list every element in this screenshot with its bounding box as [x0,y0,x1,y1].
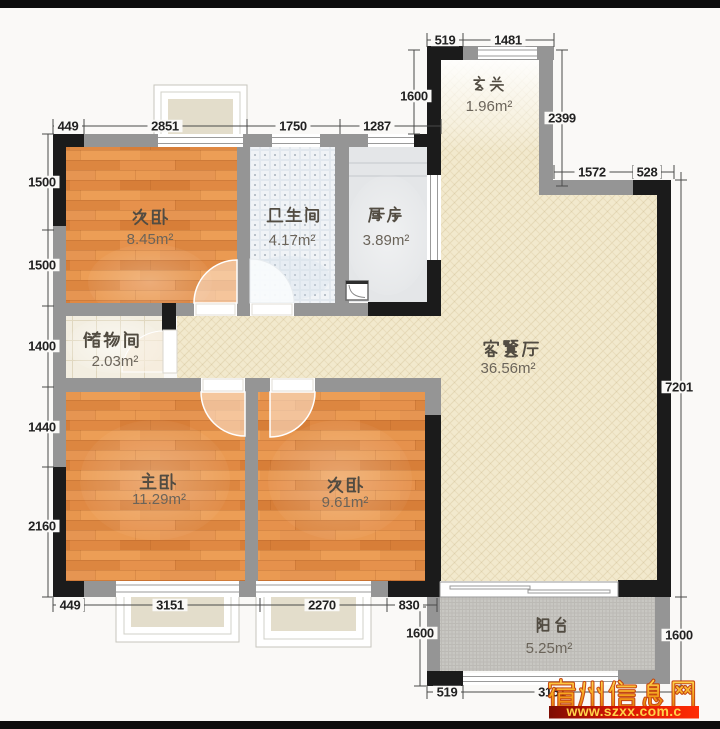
svg-text:1400: 1400 [28,339,56,354]
svg-text:3151: 3151 [156,598,184,613]
svg-text:2160: 2160 [28,519,56,534]
svg-text:519: 519 [435,33,456,48]
svg-text:5.25m²: 5.25m² [526,640,573,657]
svg-text:519: 519 [437,685,458,700]
svg-text:4.17m²: 4.17m² [269,232,316,249]
svg-text:1440: 1440 [28,420,56,435]
svg-text:1287: 1287 [363,119,391,134]
svg-text:528: 528 [637,165,658,180]
svg-text:1500: 1500 [28,175,56,190]
svg-text:1.96m²: 1.96m² [466,98,513,115]
svg-text:3.89m²: 3.89m² [363,232,410,249]
svg-text:2399: 2399 [548,111,576,126]
svg-text:830: 830 [399,598,420,613]
svg-text:1750: 1750 [279,119,307,134]
svg-text:1600: 1600 [665,628,693,643]
svg-text:36.56m²: 36.56m² [480,360,535,377]
svg-text:1481: 1481 [494,33,522,48]
svg-text:449: 449 [58,119,79,134]
svg-text:449: 449 [60,598,81,613]
svg-text:www.szxx.com.c: www.szxx.com.c [566,703,682,719]
svg-text:1500: 1500 [28,258,56,273]
svg-text:9.61m²: 9.61m² [322,494,369,511]
svg-text:11.29m²: 11.29m² [132,491,186,508]
svg-text:1600: 1600 [406,626,434,641]
svg-text:2851: 2851 [151,119,179,134]
svg-text:7201: 7201 [665,380,693,395]
svg-text:1572: 1572 [578,165,606,180]
svg-text:2270: 2270 [308,598,336,613]
svg-text:1600: 1600 [400,89,428,104]
svg-text:8.45m²: 8.45m² [127,231,174,248]
svg-text:2.03m²: 2.03m² [92,353,139,370]
